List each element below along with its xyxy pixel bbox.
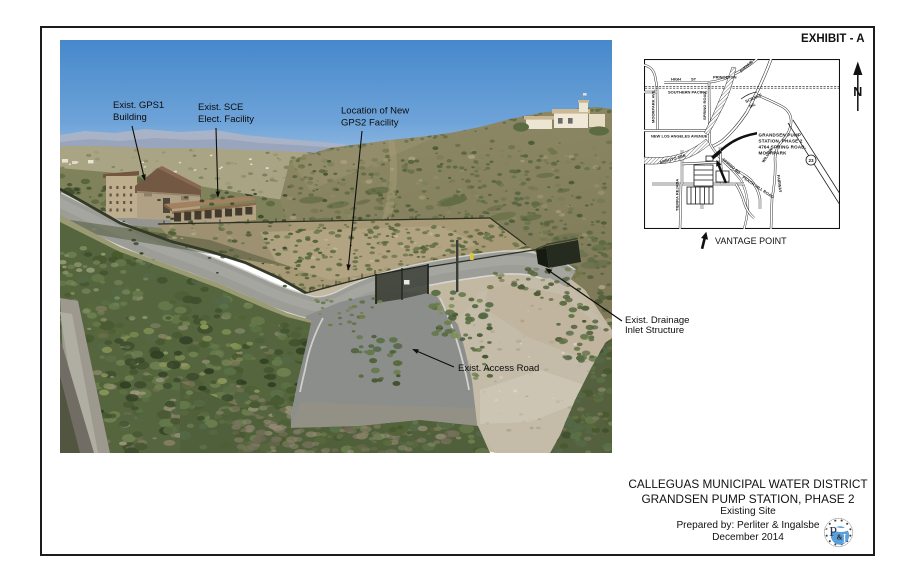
svg-text:I: I xyxy=(842,531,846,546)
svg-text:SPRING ROAD: SPRING ROAD xyxy=(702,92,707,120)
svg-text:Exist. Access Road: Exist. Access Road xyxy=(458,363,539,374)
svg-text:N: N xyxy=(853,85,862,99)
svg-text:23: 23 xyxy=(808,158,814,163)
svg-text:ST: ST xyxy=(691,77,697,82)
svg-text:NEW LOS ANGELES AVENUE: NEW LOS ANGELES AVENUE xyxy=(651,134,708,139)
svg-text:HIGH: HIGH xyxy=(671,77,681,82)
svg-text:STATION, PHASE 2: STATION, PHASE 2 xyxy=(759,139,803,144)
svg-text:PRINCETON: PRINCETON xyxy=(713,75,737,80)
svg-text:GRANDSEN PUMP: GRANDSEN PUMP xyxy=(759,133,802,138)
svg-text:4764 SPRING ROAD,: 4764 SPRING ROAD, xyxy=(759,145,807,150)
svg-text:Location of New: Location of New xyxy=(341,106,409,117)
svg-text:MOORPARK: MOORPARK xyxy=(759,151,788,156)
svg-text:Building: Building xyxy=(113,112,147,123)
svg-text:Exist. GPS1: Exist. GPS1 xyxy=(113,100,164,111)
svg-text:Elect. Facility: Elect. Facility xyxy=(198,114,254,125)
svg-text:MOORPARK AVE.: MOORPARK AVE. xyxy=(651,90,656,123)
svg-text:Exist. SCE: Exist. SCE xyxy=(198,102,243,113)
svg-text:GPS2 Facility: GPS2 Facility xyxy=(341,118,399,129)
svg-text:VANTAGE POINT: VANTAGE POINT xyxy=(715,236,787,246)
svg-text:TIERRA REJADA: TIERRA REJADA xyxy=(675,179,680,211)
